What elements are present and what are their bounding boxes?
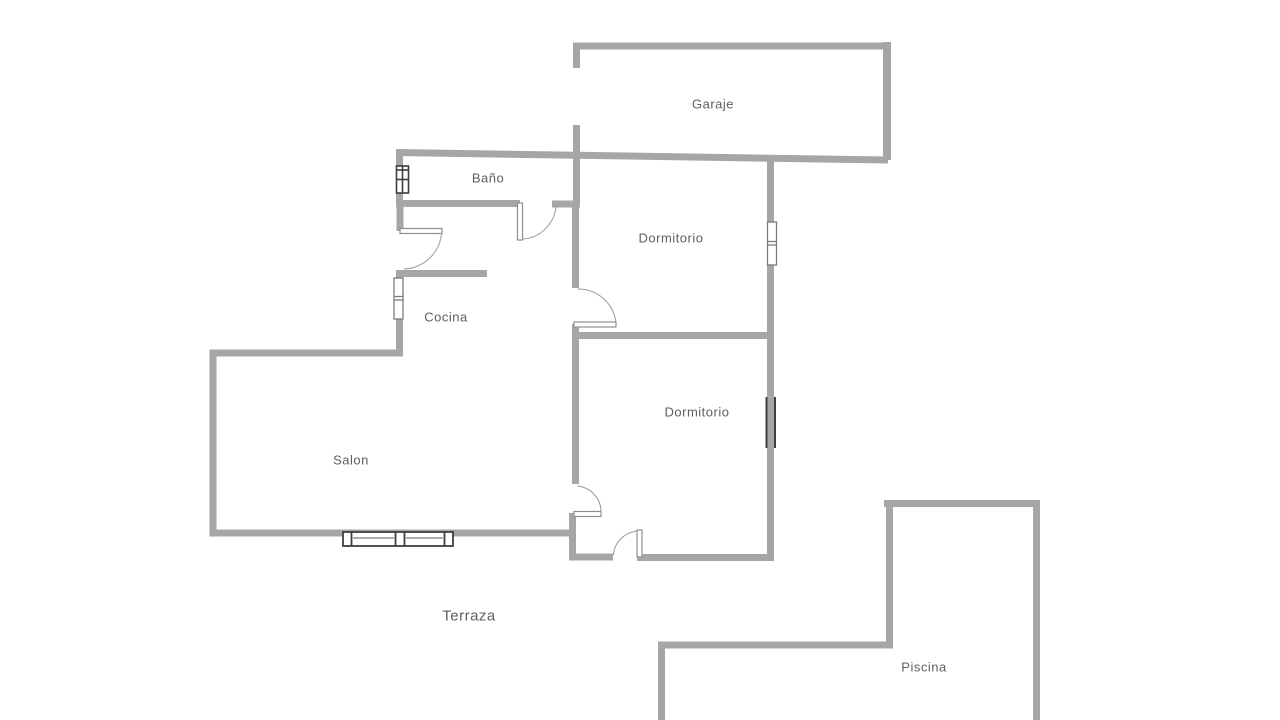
walls: [210, 42, 1041, 720]
bano-door: [518, 203, 557, 240]
dormitorio-1-door-leaf: [574, 322, 616, 327]
dormitorio-1-door: [574, 289, 616, 327]
wall-garage-bottom-slanted: [396, 153, 888, 161]
bano-window: [397, 166, 409, 193]
room-label-garaje: Garaje: [692, 97, 734, 112]
room-label-piscina: Piscina: [901, 660, 946, 675]
room-label-dormitorio-2: Dormitorio: [665, 405, 730, 420]
bano-door-arc: [523, 205, 557, 240]
doors: [400, 203, 642, 557]
terraza-door-arc: [614, 531, 640, 555]
room-label-dormitorio-1: Dormitorio: [639, 231, 704, 246]
cocina-door: [400, 229, 442, 270]
room-label-bano: Baño: [472, 171, 504, 186]
bano-door-leaf: [518, 203, 523, 240]
floor-plan-canvas: Garaje Baño Dormitorio Cocina Dormitorio…: [0, 0, 1280, 720]
dormitorio-1-window: [768, 222, 777, 265]
dormitorio-2-door-leaf: [574, 512, 601, 517]
windows: [343, 166, 777, 546]
room-label-salon: Salon: [333, 453, 369, 468]
terraza-door: [614, 530, 643, 557]
cocina-door-arc: [404, 233, 442, 269]
terraza-door-leaf: [637, 530, 642, 557]
room-label-cocina: Cocina: [424, 310, 467, 325]
cocina-door-leaf: [400, 229, 442, 234]
room-label-terraza: Terraza: [442, 608, 496, 625]
dormitorio-2-door-arc: [578, 486, 602, 512]
dormitorio-2-door: [574, 486, 601, 517]
cocina-window: [394, 278, 403, 319]
salon-sliding-window: [343, 532, 453, 546]
dormitorio-1-door-arc: [578, 289, 617, 323]
floor-plan-drawing: [0, 0, 1280, 720]
